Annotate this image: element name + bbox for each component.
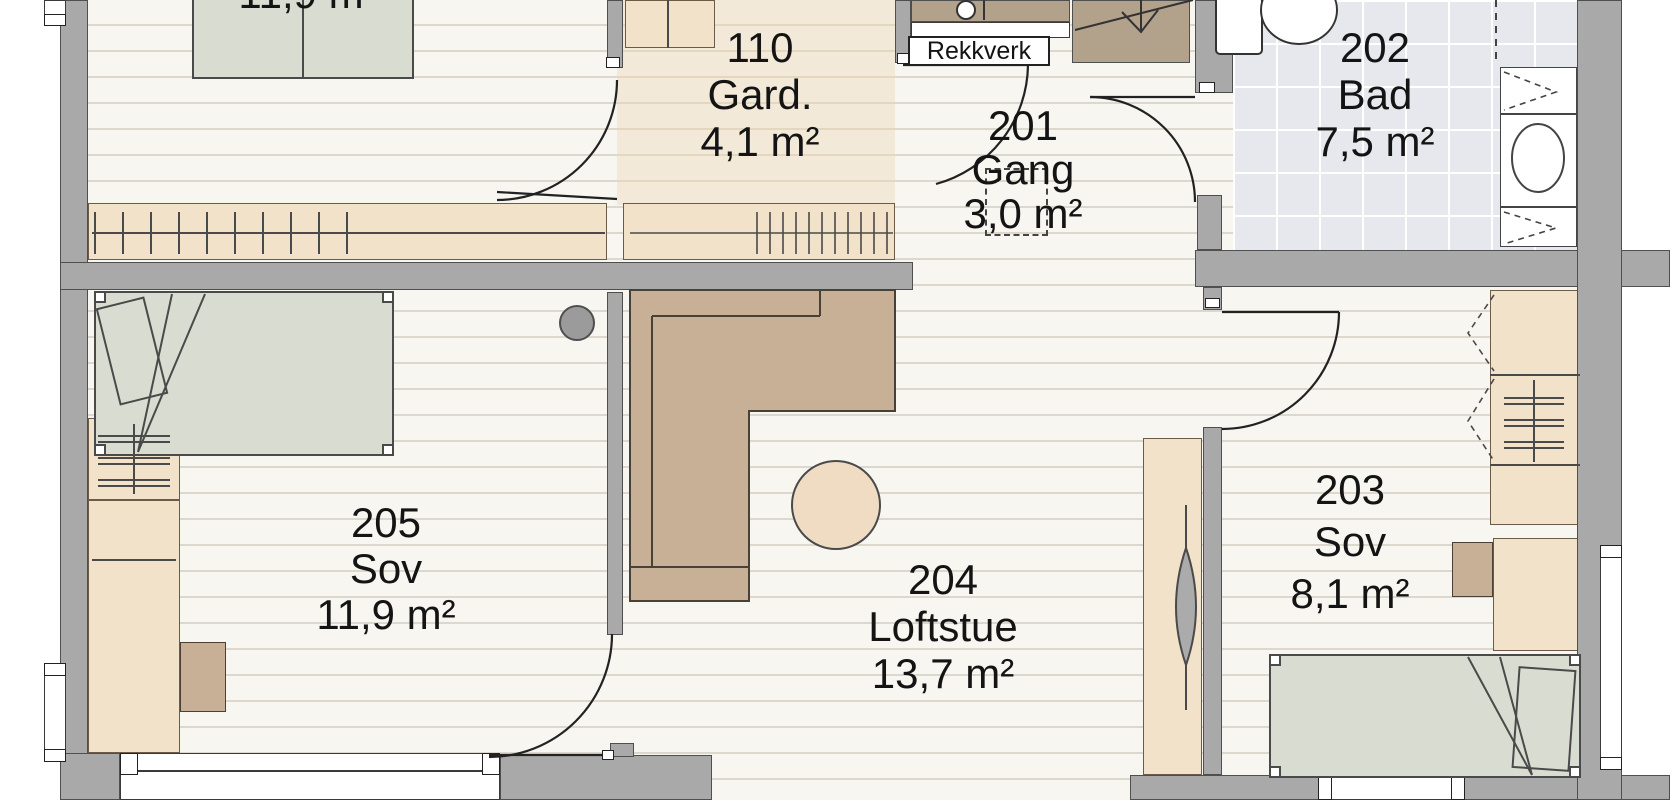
- wall-bottom-mid: [500, 755, 712, 800]
- floor-plan: Rekkverk 11,9 m² 110 Gard. 4,1 m² 201 Ga…: [0, 0, 1670, 800]
- wall-bath-left-upper: [1195, 0, 1233, 93]
- door-hinge-203: [1205, 298, 1220, 308]
- room-name: Gang: [963, 148, 1082, 192]
- window-left-top-cap: [44, 14, 66, 26]
- room-area: 3,0 m²: [963, 192, 1082, 236]
- window-bottom-left: [120, 753, 500, 800]
- room-number: 201: [963, 104, 1082, 148]
- chair-203: [1452, 542, 1493, 597]
- window-left-mid-cap-bottom: [44, 749, 66, 762]
- door-hinge-gard: [606, 57, 620, 68]
- room-label-203: 203 Sov 8,1 m²: [1290, 464, 1409, 620]
- desk-203: [1493, 538, 1580, 651]
- railing-label: Rekkverk: [927, 38, 1031, 65]
- window-bottom-right-cap-l: [1318, 775, 1332, 800]
- room-number: 204: [868, 556, 1017, 603]
- window-bottom-right-cap-r: [1451, 775, 1465, 800]
- wardrobe-203: [1490, 290, 1580, 525]
- desk-205: [88, 500, 180, 753]
- door-hinge-bad: [1199, 82, 1215, 93]
- dresser-205: [88, 418, 180, 500]
- railing-label-box: Rekkverk: [908, 36, 1050, 66]
- room-name: Bad: [1315, 71, 1434, 118]
- wall-bottom-left-corner: [60, 753, 120, 800]
- room-label-202: 202 Bad 7,5 m²: [1315, 24, 1434, 165]
- room-area: 13,7 m²: [868, 650, 1017, 697]
- wall-bath-left-lower: [1197, 195, 1222, 250]
- room-number: 203: [1290, 464, 1409, 516]
- door-hinge-205: [602, 750, 614, 760]
- window-bottom-left-sill: [124, 770, 496, 772]
- room-area: 7,5 m²: [1315, 118, 1434, 165]
- window-right-cap-top: [1600, 545, 1622, 558]
- staircase-down: [1072, 0, 1190, 63]
- room-name: Sov: [1290, 516, 1409, 568]
- window-left-mid: [44, 663, 66, 762]
- room-label-partial-top: 11,9 m²: [238, 0, 377, 17]
- room-name: Sov: [316, 546, 455, 592]
- window-right-cap-bottom: [1600, 757, 1622, 770]
- window-bottom-left-cap-r: [482, 753, 500, 775]
- room-number: 202: [1315, 24, 1434, 71]
- bathroom-vanity: [1500, 67, 1577, 247]
- window-bottom-right: [1318, 775, 1465, 800]
- room-number: 205: [316, 500, 455, 546]
- room-number: 110: [700, 24, 819, 71]
- room-label-205: 205 Sov 11,9 m²: [316, 500, 455, 638]
- window-bottom-left-cap-l: [120, 753, 138, 775]
- chair-205: [180, 642, 226, 712]
- room-label-204: 204 Loftstue 13,7 m²: [868, 556, 1017, 697]
- wall-204-203: [1203, 427, 1222, 775]
- window-left-mid-cap-top: [44, 663, 66, 676]
- wall-horizontal-main: [60, 262, 913, 290]
- room-area: 8,1 m²: [1290, 568, 1409, 620]
- stair-void: [911, 0, 1070, 22]
- room-name: Loftstue: [868, 603, 1017, 650]
- wardrobe-strip-gard: [623, 203, 895, 260]
- room-name: Gard.: [700, 71, 819, 118]
- window-right: [1600, 545, 1622, 770]
- room-label-110: 110 Gard. 4,1 m²: [700, 24, 819, 165]
- tv-bench-204: [1143, 438, 1202, 775]
- room-area: 4,1 m²: [700, 118, 819, 165]
- room-area: 11,9 m²: [316, 592, 455, 638]
- room-label-201: 201 Gang 3,0 m²: [963, 104, 1082, 236]
- wardrobe-strip-left: [88, 203, 607, 260]
- wall-205-204: [607, 292, 623, 635]
